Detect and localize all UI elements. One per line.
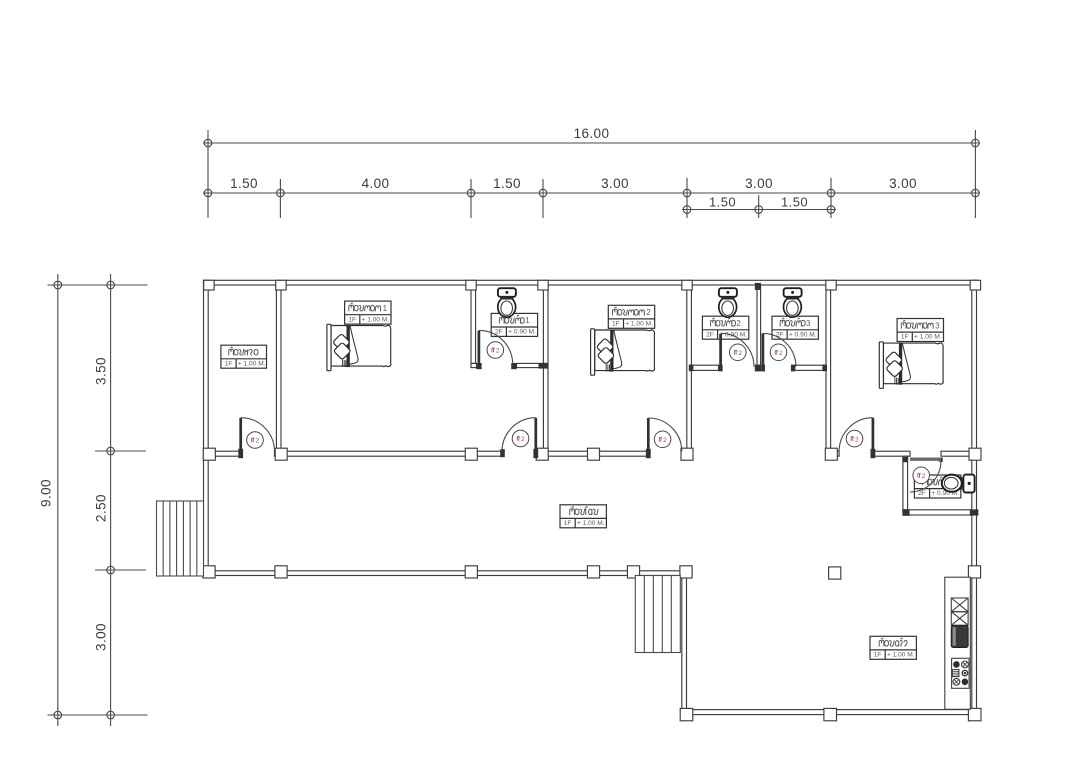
svg-text:1: 1 xyxy=(525,316,530,325)
svg-text:2F: 2F xyxy=(706,331,714,338)
svg-text:2: 2 xyxy=(922,473,926,480)
svg-text:16.00: 16.00 xyxy=(574,126,610,141)
svg-text:2: 2 xyxy=(736,319,741,328)
svg-text:4.00: 4.00 xyxy=(362,176,390,191)
svg-text:2: 2 xyxy=(496,348,500,355)
svg-text:2: 2 xyxy=(255,438,259,445)
svg-text:+ 0.90 M.: + 0.90 M. xyxy=(508,329,536,336)
svg-text:+ 0.90 M.: + 0.90 M. xyxy=(719,331,747,338)
svg-text:2: 2 xyxy=(646,308,651,317)
svg-text:3.50: 3.50 xyxy=(94,357,109,385)
svg-text:3: 3 xyxy=(806,319,811,328)
svg-text:1.50: 1.50 xyxy=(781,195,808,210)
svg-text:+ 1.00 M.: + 1.00 M. xyxy=(362,316,390,323)
svg-text:2F: 2F xyxy=(918,490,926,497)
svg-text:2.50: 2.50 xyxy=(94,494,109,522)
svg-text:1: 1 xyxy=(383,304,388,313)
svg-text:1F: 1F xyxy=(225,360,233,367)
svg-text:+ 1.00 M.: + 1.00 M. xyxy=(577,520,605,527)
svg-text:2: 2 xyxy=(855,436,859,443)
svg-text:3.00: 3.00 xyxy=(889,176,917,191)
svg-text:3.00: 3.00 xyxy=(601,176,629,191)
svg-text:1F: 1F xyxy=(564,520,572,527)
svg-text:1F: 1F xyxy=(901,334,909,341)
svg-text:3.00: 3.00 xyxy=(94,623,109,651)
svg-text:1F: 1F xyxy=(874,652,882,659)
svg-text:+ 1.00 M.: + 1.00 M. xyxy=(238,360,266,367)
svg-text:2: 2 xyxy=(738,350,742,357)
svg-text:3: 3 xyxy=(935,321,940,330)
svg-text:+ 0.90 M.: + 0.90 M. xyxy=(789,331,817,338)
svg-text:+ 1.00 M.: + 1.00 M. xyxy=(914,334,942,341)
svg-text:2: 2 xyxy=(521,436,525,443)
svg-text:1F: 1F xyxy=(348,316,356,323)
svg-text:3.00: 3.00 xyxy=(745,176,773,191)
svg-text:1.50: 1.50 xyxy=(709,195,736,210)
svg-text:+ 1.00 M.: + 1.00 M. xyxy=(625,321,653,328)
svg-text:9.00: 9.00 xyxy=(39,479,54,507)
svg-text:1.50: 1.50 xyxy=(493,176,521,191)
svg-text:2: 2 xyxy=(663,437,667,444)
svg-text:1F: 1F xyxy=(612,321,620,328)
svg-text:2: 2 xyxy=(779,350,783,357)
svg-text:1.50: 1.50 xyxy=(230,176,258,191)
svg-text:+ 1.00 M.: + 1.00 M. xyxy=(887,652,915,659)
